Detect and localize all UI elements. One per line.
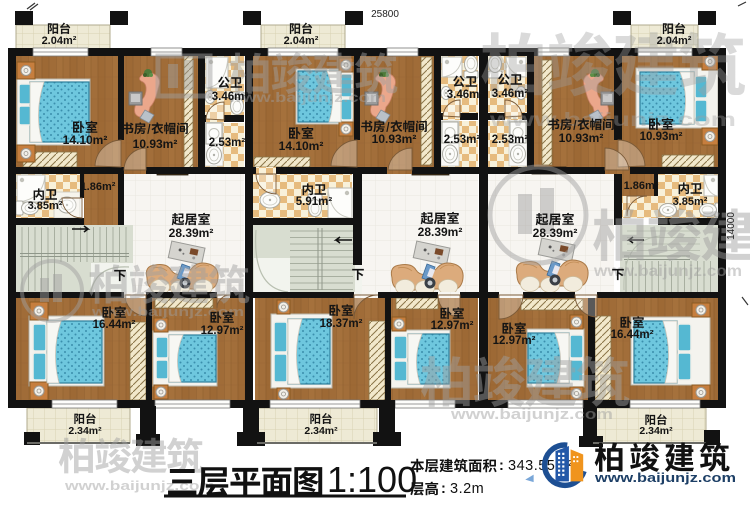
svg-text:1.86m²: 1.86m² (624, 180, 659, 192)
svg-text:1.86m²: 1.86m² (81, 181, 116, 193)
svg-text:2.53m²: 2.53m² (492, 134, 529, 146)
svg-text:2.34m²: 2.34m² (304, 425, 338, 437)
svg-text:3.46m²: 3.46m² (492, 88, 529, 100)
svg-text:10.93m²: 10.93m² (133, 137, 178, 151)
svg-text:www.baijunjz.com: www.baijunjz.com (227, 90, 386, 105)
svg-text:5.91m²: 5.91m² (296, 196, 333, 208)
svg-text:www.baijunjz.com: www.baijunjz.com (593, 263, 742, 280)
svg-text:1:100: 1:100 (327, 459, 417, 500)
svg-text:16.44m²: 16.44m² (93, 319, 136, 331)
svg-text:www.baijunjz.com: www.baijunjz.com (450, 406, 613, 423)
svg-text:2.04m²: 2.04m² (657, 35, 692, 47)
svg-text:www.baijunjz.com: www.baijunjz.com (91, 304, 244, 319)
svg-text:18.37m²: 18.37m² (320, 318, 363, 330)
svg-text:3.2m: 3.2m (450, 481, 484, 497)
svg-text:3.85m²: 3.85m² (28, 200, 63, 212)
svg-text:3.85m²: 3.85m² (673, 196, 708, 208)
svg-text:www.baijunjz.com: www.baijunjz.com (488, 110, 736, 131)
svg-text:2.53m²: 2.53m² (209, 137, 246, 149)
svg-text:3.46m²: 3.46m² (212, 91, 249, 103)
svg-text:10.93m²: 10.93m² (559, 131, 604, 145)
svg-text:www.baijunjz.com: www.baijunjz.com (594, 471, 736, 485)
svg-text:14.10m²: 14.10m² (279, 139, 324, 153)
svg-text:2.53m²: 2.53m² (444, 134, 481, 146)
svg-text::: : (441, 481, 446, 497)
svg-text:28.39m²: 28.39m² (169, 226, 214, 240)
svg-text:2.34m²: 2.34m² (639, 425, 673, 437)
svg-text:12.97m²: 12.97m² (493, 335, 536, 347)
svg-text:2.04m²: 2.04m² (284, 35, 319, 47)
svg-text:14.10m²: 14.10m² (63, 133, 108, 147)
svg-text:25800: 25800 (371, 9, 399, 20)
svg-text:2.04m²: 2.04m² (42, 35, 77, 47)
svg-text:14000: 14000 (726, 212, 737, 240)
svg-text:28.39m²: 28.39m² (533, 226, 578, 240)
svg-text:10.93m²: 10.93m² (372, 132, 417, 146)
svg-text:16.44m²: 16.44m² (611, 329, 654, 341)
svg-text:10.93m²: 10.93m² (640, 131, 683, 143)
svg-text:3.46m²: 3.46m² (447, 89, 484, 101)
svg-text:2.34m²: 2.34m² (68, 425, 102, 437)
svg-text:28.39m²: 28.39m² (418, 225, 463, 239)
svg-text::: : (499, 458, 504, 474)
svg-text:12.97m²: 12.97m² (201, 325, 244, 337)
svg-text:12.97m²: 12.97m² (431, 320, 474, 332)
